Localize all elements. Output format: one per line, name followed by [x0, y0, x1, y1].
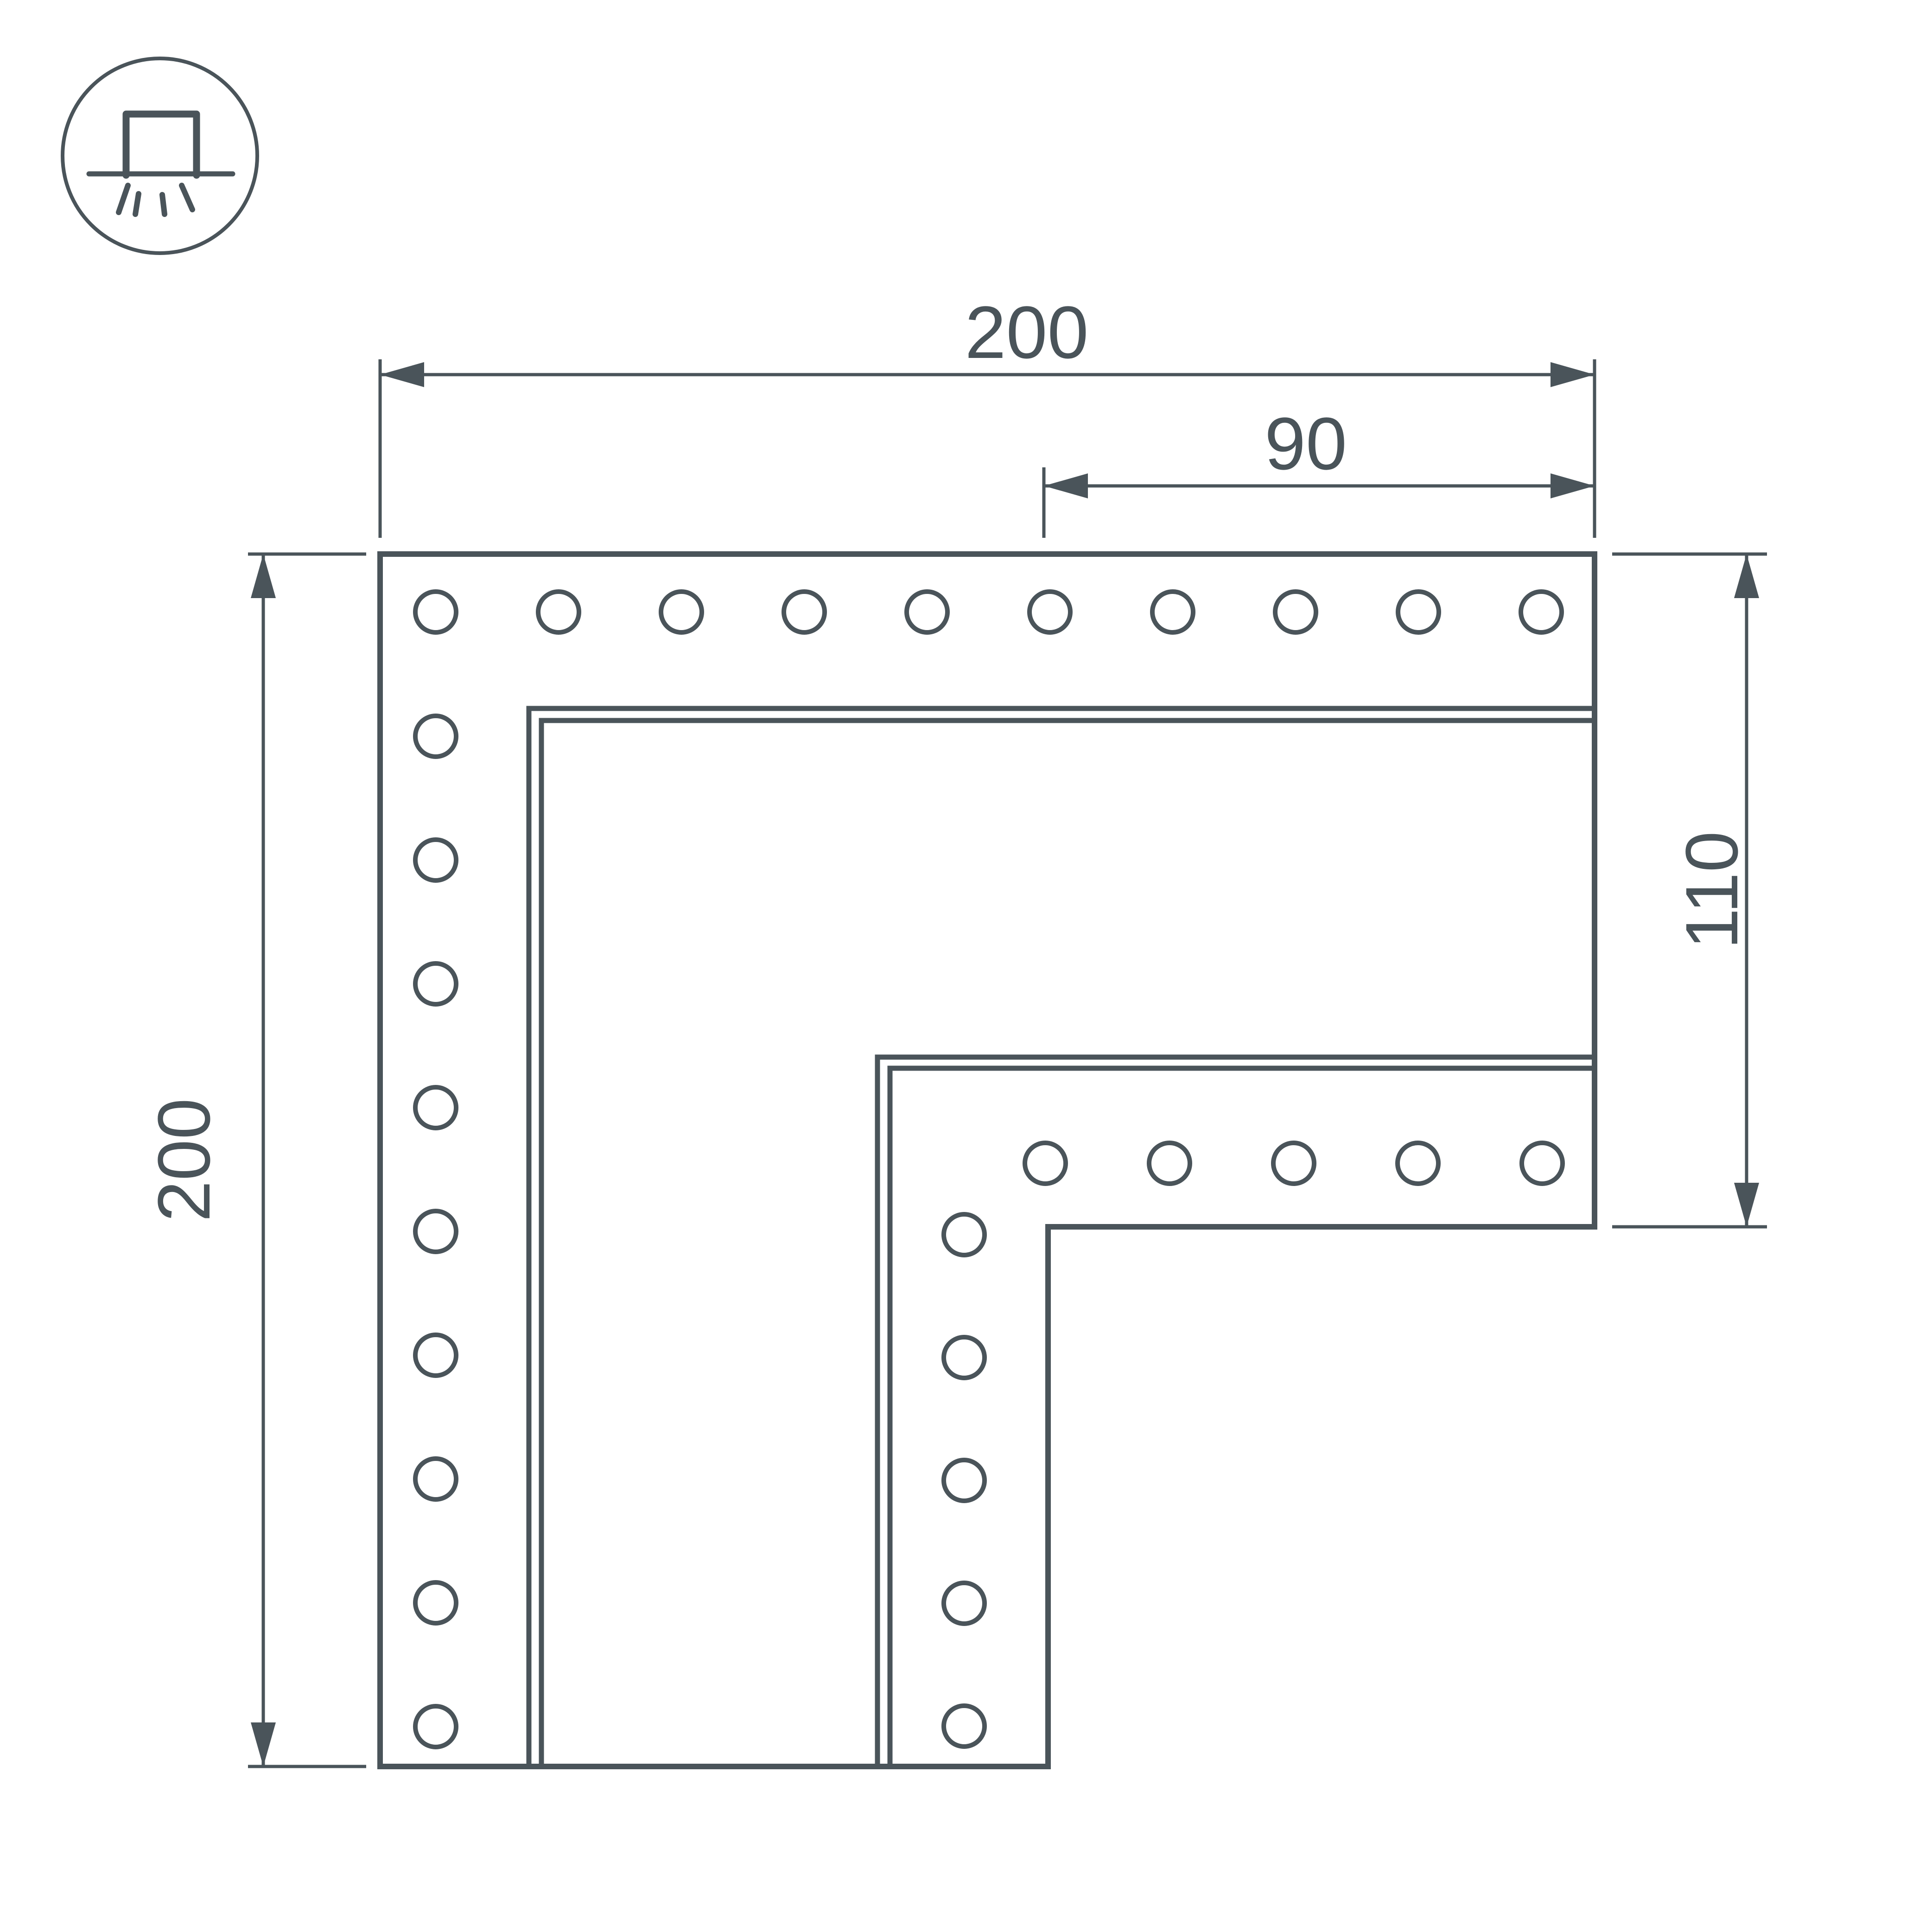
arrowhead-bottom: [251, 1722, 276, 1766]
mounting-hole: [415, 840, 456, 880]
mounting-hole: [415, 1211, 456, 1252]
mounting-hole: [944, 1460, 985, 1501]
mounting-hole: [1521, 592, 1562, 632]
mounting-hole: [415, 1459, 456, 1499]
dimension-label-left-height: 200: [142, 1098, 225, 1222]
mounting-hole: [1149, 1143, 1190, 1184]
mounting-hole: [415, 592, 456, 632]
dimension-left-height: 200: [142, 554, 366, 1766]
dimension-top-width: 200: [380, 291, 1595, 538]
arrowhead-top: [251, 554, 276, 598]
mounting-hole: [415, 1582, 456, 1623]
arrowhead-left: [1044, 473, 1088, 498]
mounting-hole: [944, 1706, 985, 1747]
mounting-hole: [1398, 1143, 1438, 1184]
arrowhead-right: [1551, 473, 1595, 498]
mounting-hole: [415, 1335, 456, 1376]
mounting-hole: [415, 1706, 456, 1747]
arrowhead-right: [1551, 362, 1595, 387]
icon-circle: [63, 58, 257, 253]
mounting-hole: [1273, 1143, 1314, 1184]
dimension-right-height: 110: [1612, 554, 1767, 1227]
mounting-hole: [944, 1583, 985, 1624]
surface-mount-light-icon: [63, 58, 257, 253]
arrowhead-top: [1734, 554, 1759, 598]
mounting-hole: [538, 592, 579, 632]
arrowhead-bottom: [1734, 1183, 1759, 1227]
mounting-hole: [415, 716, 456, 757]
mounting-hole: [944, 1214, 985, 1255]
mounting-hole: [661, 592, 702, 632]
dimension-label-top-width: 200: [965, 291, 1089, 374]
mounting-hole: [944, 1337, 985, 1378]
arrowhead-left: [380, 362, 424, 387]
mounting-hole: [907, 592, 947, 632]
icon-light-rays: [119, 185, 192, 214]
technical-drawing: 200 90 200 110: [0, 0, 1932, 1932]
dimension-label-right-height: 110: [1670, 831, 1753, 949]
mounting-hole: [1025, 1143, 1066, 1184]
mounting-hole: [415, 963, 456, 1004]
mounting-hole: [1398, 592, 1439, 632]
mounting-hole: [1522, 1143, 1563, 1184]
mounting-hole: [415, 1087, 456, 1128]
holes-left_column: [415, 716, 456, 1747]
mounting-hole: [1030, 592, 1070, 632]
icon-fixture-box: [126, 114, 197, 175]
mounting-hole: [1275, 592, 1316, 632]
mounting-hole: [1152, 592, 1193, 632]
dimension-label-inner-width: 90: [1265, 402, 1347, 485]
dimension-inner-width: 90: [1044, 402, 1595, 538]
mounting-hole: [784, 592, 825, 632]
